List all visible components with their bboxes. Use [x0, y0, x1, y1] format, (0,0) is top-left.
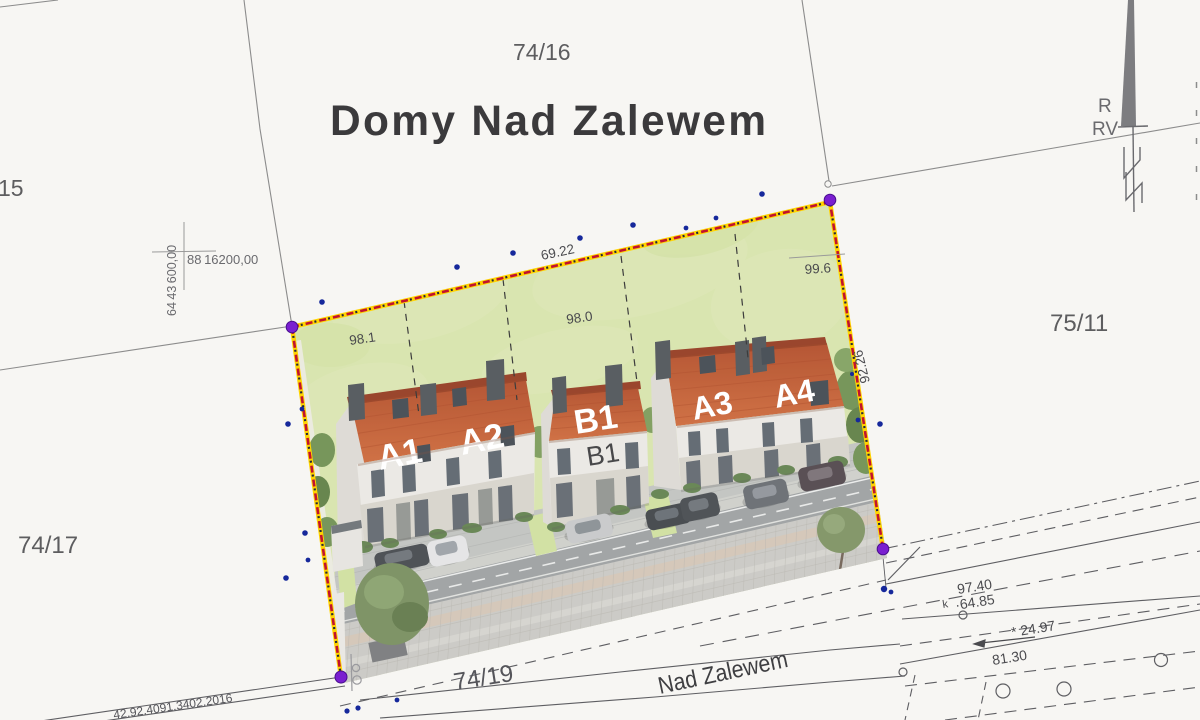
svg-text:64 43 600,00: 64 43 600,00: [165, 245, 179, 316]
svg-text:R: R: [1098, 96, 1112, 117]
svg-text:Domy Nad Zalewem: Domy Nad Zalewem: [330, 98, 768, 145]
svg-text:15: 15: [0, 175, 24, 201]
svg-text:88 16200,00: 88 16200,00: [187, 252, 258, 267]
svg-text:RV: RV: [1092, 119, 1118, 140]
svg-text:74/17: 74/17: [18, 532, 78, 559]
svg-text:75/11: 75/11: [1050, 310, 1108, 337]
svg-text:99.6: 99.6: [804, 260, 831, 277]
svg-text:74/16: 74/16: [513, 39, 571, 65]
